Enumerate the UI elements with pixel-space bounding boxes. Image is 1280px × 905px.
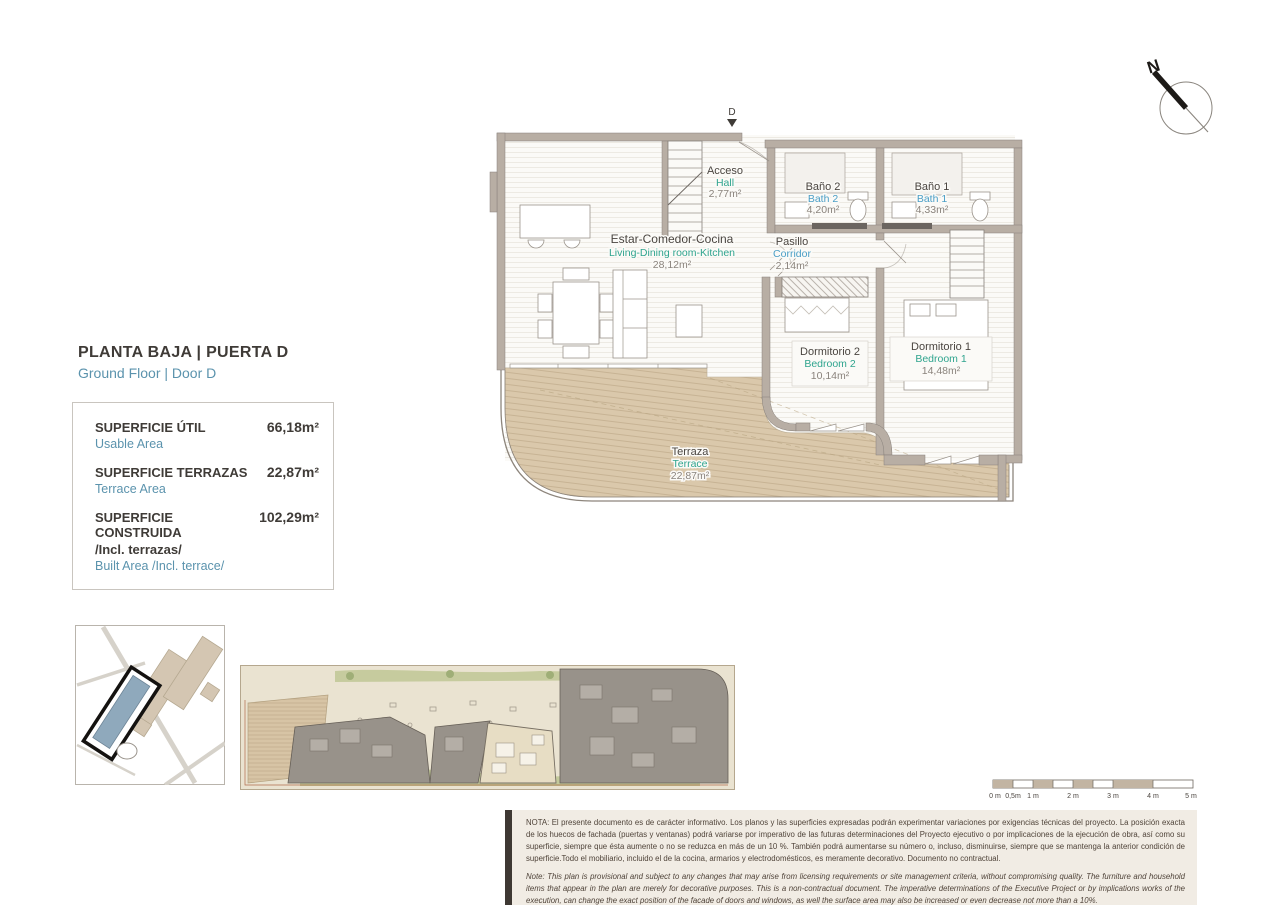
room-hall-es: Acceso xyxy=(707,165,743,177)
area-row-terrace: SUPERFICIE TERRAZAS 22,87m² Terrace Area xyxy=(95,464,319,496)
scale-bar: 0 m 0,5m 1 m 2 m 3 m 4 m 5 m xyxy=(988,772,1208,804)
scale-label-1: 1 m xyxy=(1027,793,1039,800)
area-row-usable: SUPERFICIE ÚTIL 66,18m² Usable Area xyxy=(95,419,319,451)
key-plan-pool-blob xyxy=(117,743,137,759)
room-bath1-area: 4,33m² xyxy=(916,204,949,216)
sofa xyxy=(613,270,647,358)
page-subtitle: Ground Floor | Door D xyxy=(78,365,438,381)
usable-area-label-en: Usable Area xyxy=(95,437,319,451)
surface-areas-box: SUPERFICIE ÚTIL 66,18m² Usable Area SUPE… xyxy=(72,402,334,590)
disclaimer-text-en: Note: This plan is provisional and subje… xyxy=(526,871,1185,905)
bedroom1-wardrobe xyxy=(950,230,984,298)
north-needle-tail xyxy=(1186,108,1208,132)
bath1-slider-door xyxy=(882,223,932,229)
room-terrace-en: Terrace xyxy=(672,458,707,470)
room-corridor-area: 2,14m² xyxy=(776,260,809,272)
room-corridor-es: Pasillo xyxy=(776,236,808,248)
location-key-plan xyxy=(75,625,225,785)
usable-area-label-es: SUPERFICIE ÚTIL xyxy=(95,420,206,435)
scale-label-3: 3 m xyxy=(1107,793,1119,800)
north-label: N xyxy=(1145,56,1163,78)
scale-label-0: 0 m xyxy=(989,793,1001,800)
scale-label-2: 2 m xyxy=(1067,793,1079,800)
room-bedroom1-es: Dormitorio 1 xyxy=(911,341,971,353)
room-bath1-es: Baño 1 xyxy=(915,181,950,193)
site-highlighted-unit xyxy=(480,723,556,783)
entrance-marker: D xyxy=(727,107,737,127)
room-bath2-area: 4,20m² xyxy=(807,204,840,216)
bedroom2-closet xyxy=(782,277,868,297)
title-block: PLANTA BAJA | PUERTA D Ground Floor | Do… xyxy=(78,344,438,381)
north-needle-icon xyxy=(1154,72,1186,108)
scale-label-5: 5 m xyxy=(1185,793,1197,800)
room-bedroom1-area: 14,48m² xyxy=(922,365,961,377)
staircase xyxy=(668,141,702,240)
site-plan xyxy=(240,665,735,790)
room-bedroom2-area: 10,14m² xyxy=(811,370,850,382)
terrace-area-label-es: SUPERFICIE TERRAZAS xyxy=(95,465,247,480)
room-living-area: 28,12m² xyxy=(653,259,692,271)
room-corridor-en: Corridor xyxy=(773,248,811,260)
room-living-en: Living-Dining room-Kitchen xyxy=(609,247,735,259)
north-arrow: N xyxy=(1130,50,1230,140)
terrace-area-value: 22,87m² xyxy=(267,464,319,480)
page-title: PLANTA BAJA | PUERTA D xyxy=(78,344,438,362)
terrace-area-label-en: Terrace Area xyxy=(95,482,319,496)
coffee-table xyxy=(676,305,702,337)
bath2-slider-door xyxy=(812,223,867,229)
entrance-letter: D xyxy=(728,107,735,118)
plan-sheet-page: N xyxy=(0,0,1280,905)
usable-area-value: 66,18m² xyxy=(267,419,319,435)
floor-plan: D Acceso Hall 2,77m² Baño 2 Bath 2 4,20m… xyxy=(480,100,1050,530)
built-area-label-es: SUPERFICIE CONSTRUIDA xyxy=(95,510,259,540)
room-terrace-area: 22,87m² xyxy=(671,470,710,482)
scale-label-05: 0,5m xyxy=(1005,793,1021,800)
disclaimer-note: NOTA: El presente documento es de caráct… xyxy=(505,810,1197,905)
room-living-es: Estar-Comedor-Cocina xyxy=(611,232,734,246)
room-terrace-es: Terraza xyxy=(672,446,710,458)
entrance-arrow-icon xyxy=(727,119,737,127)
built-area-label-es2: /Incl. terrazas/ xyxy=(95,542,319,557)
built-area-label-en: Built Area /Incl. terrace/ xyxy=(95,559,319,573)
area-row-built: SUPERFICIE CONSTRUIDA 102,29m² /Incl. te… xyxy=(95,509,319,573)
bedroom2-bed xyxy=(785,298,849,332)
scale-label-4: 4 m xyxy=(1147,793,1159,800)
room-bedroom1-en: Bedroom 1 xyxy=(915,353,967,365)
disclaimer-text-es: NOTA: El presente documento es de caráct… xyxy=(526,817,1185,865)
room-bedroom2-en: Bedroom 2 xyxy=(804,358,856,370)
room-bath2-es: Baño 2 xyxy=(806,181,841,193)
built-area-value: 102,29m² xyxy=(259,509,319,525)
room-bedroom2-es: Dormitorio 2 xyxy=(800,346,860,358)
room-hall-area: 2,77m² xyxy=(709,188,742,200)
